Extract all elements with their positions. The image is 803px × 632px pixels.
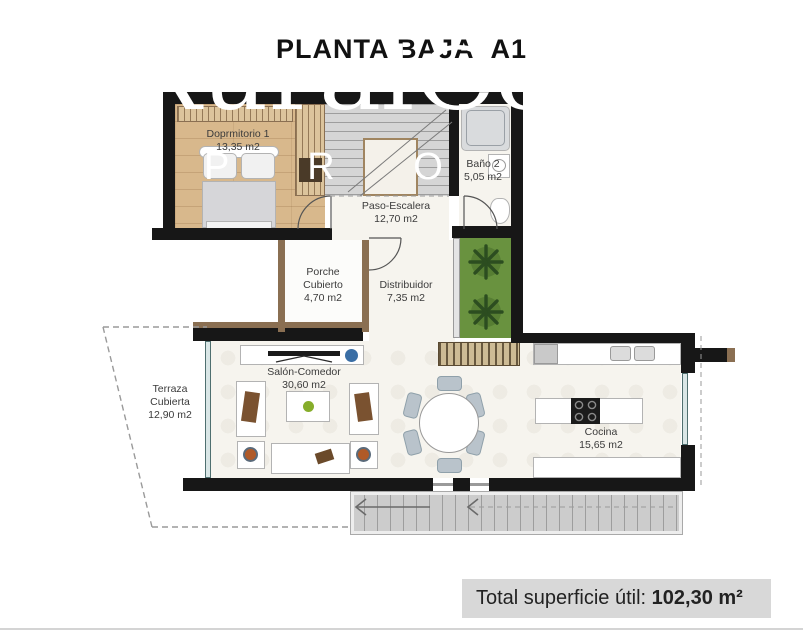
room-label-cocina: Cocina 15,65 m2	[539, 426, 663, 452]
plate	[243, 447, 258, 462]
kitchen-counter-bottom	[533, 457, 681, 478]
wall	[452, 226, 522, 238]
dining-chair	[437, 376, 462, 391]
window	[682, 373, 688, 445]
tv	[268, 351, 340, 356]
room-name: Porche	[286, 266, 360, 279]
kitchen-sink	[634, 346, 655, 361]
total-area-label: Total superficie útil:	[476, 587, 646, 609]
wall-stub	[695, 348, 727, 362]
room-name: Cocina	[539, 426, 663, 439]
room-name: Distribuidor	[354, 279, 458, 292]
wall-stub-tip	[727, 348, 735, 362]
wall	[152, 228, 332, 240]
watermark-brand: RuralCoast	[122, 30, 717, 130]
window-opening	[433, 478, 453, 491]
room-name: Salón-Comedor	[242, 366, 366, 379]
exterior-stairs-notch	[683, 491, 700, 501]
room-label-terraza: Terraza Cubierta 12,90 m2	[118, 383, 222, 421]
garden-strip	[460, 238, 511, 338]
porch-wall	[278, 240, 285, 332]
room-label-paso: Paso-Escalera 12,70 m2	[334, 200, 458, 226]
window-opening	[470, 478, 489, 491]
total-area-value: 102,30 m²	[652, 587, 743, 609]
room-label-porche: Porche Cubierto 4,70 m2	[286, 266, 360, 304]
floor-plan-page: PLANTA BAJAA1	[0, 0, 803, 632]
pergola-bench	[438, 342, 520, 366]
plate	[356, 447, 371, 462]
room-name: Cubierta	[118, 396, 222, 409]
speaker	[345, 349, 358, 362]
dining-table	[419, 393, 479, 453]
watermark-tagline: P R O P E R T I E S	[204, 146, 803, 189]
dining-chair	[437, 458, 462, 473]
room-label-salon: Salón-Comedor 30,60 m2	[242, 366, 366, 392]
room-name: Paso-Escalera	[334, 200, 458, 213]
room-label-distribuidor: Distribuidor 7,35 m2	[354, 279, 458, 305]
room-area: 30,60 m2	[242, 379, 366, 392]
wall	[681, 445, 695, 491]
decor-apple	[303, 401, 314, 412]
kitchen-sink	[610, 346, 631, 361]
sofa	[271, 443, 350, 474]
room-name: Cubierto	[286, 279, 360, 292]
wall	[511, 238, 523, 343]
total-area-box: Total superficie útil: 102,30 m²	[462, 579, 771, 618]
exterior-stairs	[350, 491, 683, 535]
room-area: 15,65 m2	[539, 439, 663, 452]
room-name: Terraza	[118, 383, 222, 396]
room-area: 12,90 m2	[118, 409, 222, 422]
room-area: 12,70 m2	[334, 213, 458, 226]
page-bottom-rule	[0, 628, 803, 630]
room-area: 7,35 m2	[354, 292, 458, 305]
hob	[571, 398, 600, 424]
room-area: 4,70 m2	[286, 292, 360, 305]
wall	[520, 333, 683, 343]
wall	[681, 333, 695, 373]
fridge	[534, 344, 558, 364]
toilet	[490, 198, 510, 224]
